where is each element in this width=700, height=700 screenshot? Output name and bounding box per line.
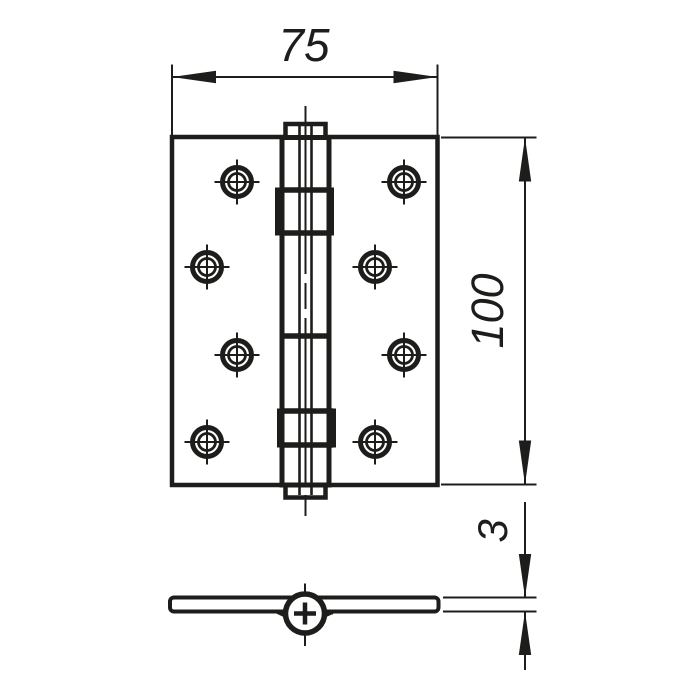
screw-hole [185,245,230,290]
arrowhead-down-icon [519,554,531,598]
arrowhead-down-icon [519,441,531,485]
front-view [172,106,438,516]
screw-hole [215,160,260,205]
arrowhead-right-icon [394,71,438,83]
dimension-height: 100 [441,138,537,485]
drawing-canvas: 75 100 3 [0,0,700,700]
hinge-technical-drawing: 75 100 3 [0,0,700,700]
screw-hole [215,333,260,378]
dimension-width-value: 75 [278,19,330,71]
screw-hole [353,245,398,290]
dimension-thickness-value: 3 [469,519,516,542]
arrowhead-left-icon [172,71,216,83]
screw-hole [382,333,427,378]
dimension-height-value: 100 [462,273,513,348]
screw-hole [185,420,230,465]
arrowhead-up-icon [519,138,531,182]
profile-view [170,584,439,647]
screw-hole [353,420,398,465]
screw-hole [382,160,427,205]
dimension-thickness: 3 [443,502,537,670]
arrowhead-up-icon [519,612,531,656]
